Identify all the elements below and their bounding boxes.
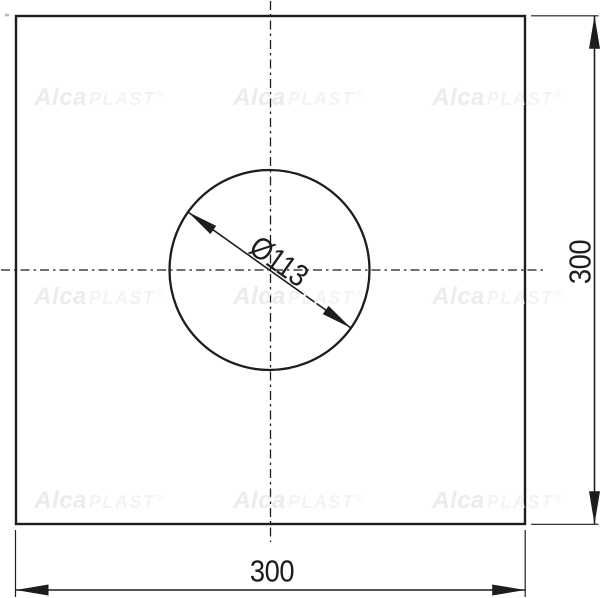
plate-height-label: 300 — [565, 240, 596, 284]
width-arrowhead-left-icon — [16, 585, 49, 596]
diameter-arrowhead-lowerright-icon — [323, 306, 351, 328]
height-arrowhead-bottom-icon — [589, 491, 600, 524]
drawing-svg — [0, 0, 600, 598]
height-arrowhead-top-icon — [589, 16, 600, 49]
technical-drawing-canvas: Alca PLAST ® Alca PLAST ® Alca PLAST ® A… — [0, 0, 600, 598]
width-arrowhead-right-icon — [492, 585, 525, 596]
plate-width-label: 300 — [250, 556, 294, 587]
diameter-arrowhead-upperleft-icon — [188, 212, 216, 234]
stray-mark — [5, 14, 9, 17]
